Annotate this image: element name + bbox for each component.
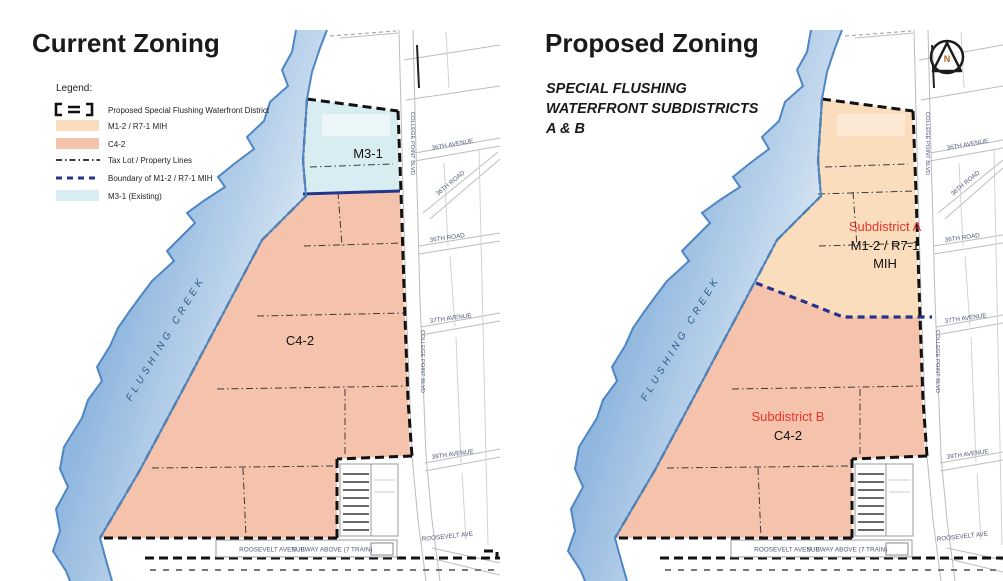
north-label: N bbox=[944, 54, 951, 64]
legend-swatch-m31 bbox=[56, 190, 99, 201]
street-college-point-blvd-lower: COLLEGE POINT BLVD bbox=[419, 330, 425, 393]
subway-above-label: SUBWAY ABOVE (7 TRAIN) bbox=[292, 547, 373, 554]
subdistrict-a-zone-label: M1-2 / R7-1 bbox=[851, 238, 920, 253]
hatch-block bbox=[340, 464, 398, 536]
street-college-point-blvd-lower: COLLEGE POINT BLVD bbox=[934, 330, 940, 393]
legend-label-c42: C4-2 bbox=[108, 140, 126, 149]
north-arrow-icon: N bbox=[931, 41, 963, 73]
street-roosevelt-ave: ROOSEVELT AVE bbox=[421, 531, 473, 543]
m31-zone bbox=[303, 99, 400, 196]
subtitle-line-1: SPECIAL FLUSHING bbox=[546, 81, 687, 97]
legend-label-district: Proposed Special Flushing Waterfront Dis… bbox=[108, 106, 270, 115]
subway-box: ROOSEVELT AVENUE SUBWAY ABOVE (7 TRAIN) bbox=[665, 540, 1003, 570]
m31-former-building bbox=[837, 114, 905, 136]
legend-label-m31: M3-1 (Existing) bbox=[108, 192, 162, 201]
street-36th-road-diagonal: 36TH ROAD bbox=[435, 169, 467, 197]
proposed-zoning-title: Proposed Zoning bbox=[545, 28, 759, 58]
subdistrict-b-name-label: Subdistrict B bbox=[752, 409, 825, 424]
m31-building bbox=[322, 114, 390, 136]
train-car-icon bbox=[886, 543, 908, 555]
rail-segment bbox=[417, 45, 419, 88]
current-zoning-panel: ROOSEVELT AVENUE SUBWAY ABOVE (7 TRAIN) … bbox=[32, 28, 500, 581]
subdistrict-a-mih-label: MIH bbox=[873, 256, 897, 271]
m31-zone-label: M3-1 bbox=[353, 146, 383, 161]
map-canvas: ROOSEVELT AVENUE SUBWAY ABOVE (7 TRAIN) … bbox=[0, 0, 1003, 581]
street-37th-avenue: 37TH AVENUE bbox=[429, 312, 472, 325]
street-roosevelt-ave: ROOSEVELT AVE bbox=[936, 531, 988, 543]
train-car-icon bbox=[371, 543, 393, 555]
street-37th-avenue: 37TH AVENUE bbox=[944, 312, 987, 325]
legend-heading: Legend: bbox=[56, 83, 92, 94]
street-36th-avenue: 36TH AVENUE bbox=[431, 138, 474, 152]
subtitle-line-2: WATERFRONT SUBDISTRICTS bbox=[546, 101, 759, 117]
legend-label-mih-boundary: Boundary of M1-2 / R7-1 MIH bbox=[108, 174, 213, 183]
current-zoning-title: Current Zoning bbox=[32, 28, 220, 58]
subway-box: ROOSEVELT AVENUE SUBWAY ABOVE (7 TRAIN) bbox=[150, 540, 500, 570]
street-39th-avenue: 39TH AVENUE bbox=[946, 448, 989, 461]
subway-above-label: SUBWAY ABOVE (7 TRAIN) bbox=[807, 547, 888, 554]
subdistrict-a-name-label: Subdistrict A bbox=[849, 219, 922, 234]
hatch-block bbox=[855, 464, 913, 536]
district-bracket-symbol bbox=[56, 104, 92, 115]
legend-swatch-c42 bbox=[56, 138, 99, 149]
legend-label-m12: M1-2 / R7-1 MIH bbox=[108, 122, 167, 131]
street-36th-road-diagonal: 36TH ROAD bbox=[950, 169, 982, 197]
zoning-map-figure: ROOSEVELT AVENUE SUBWAY ABOVE (7 TRAIN) … bbox=[0, 0, 1003, 581]
street-college-point-blvd-upper: COLLEGE POINT BLVD bbox=[924, 112, 930, 175]
street-39th-avenue: 39TH AVENUE bbox=[431, 448, 474, 461]
street-college-point-blvd-upper: COLLEGE POINT BLVD bbox=[409, 112, 415, 175]
subtitle-line-3: A & B bbox=[545, 121, 585, 137]
street-36th-avenue: 36TH AVENUE bbox=[946, 138, 989, 152]
subdistrict-b-zone-label: C4-2 bbox=[774, 428, 802, 443]
legend-swatch-m12 bbox=[56, 120, 99, 131]
c42-zone-label: C4-2 bbox=[286, 333, 314, 348]
legend-label-taxlot: Tax Lot / Property Lines bbox=[108, 156, 192, 165]
proposed-zoning-panel: ROOSEVELT AVENUE SUBWAY ABOVE (7 TRAIN) … bbox=[545, 28, 1003, 581]
